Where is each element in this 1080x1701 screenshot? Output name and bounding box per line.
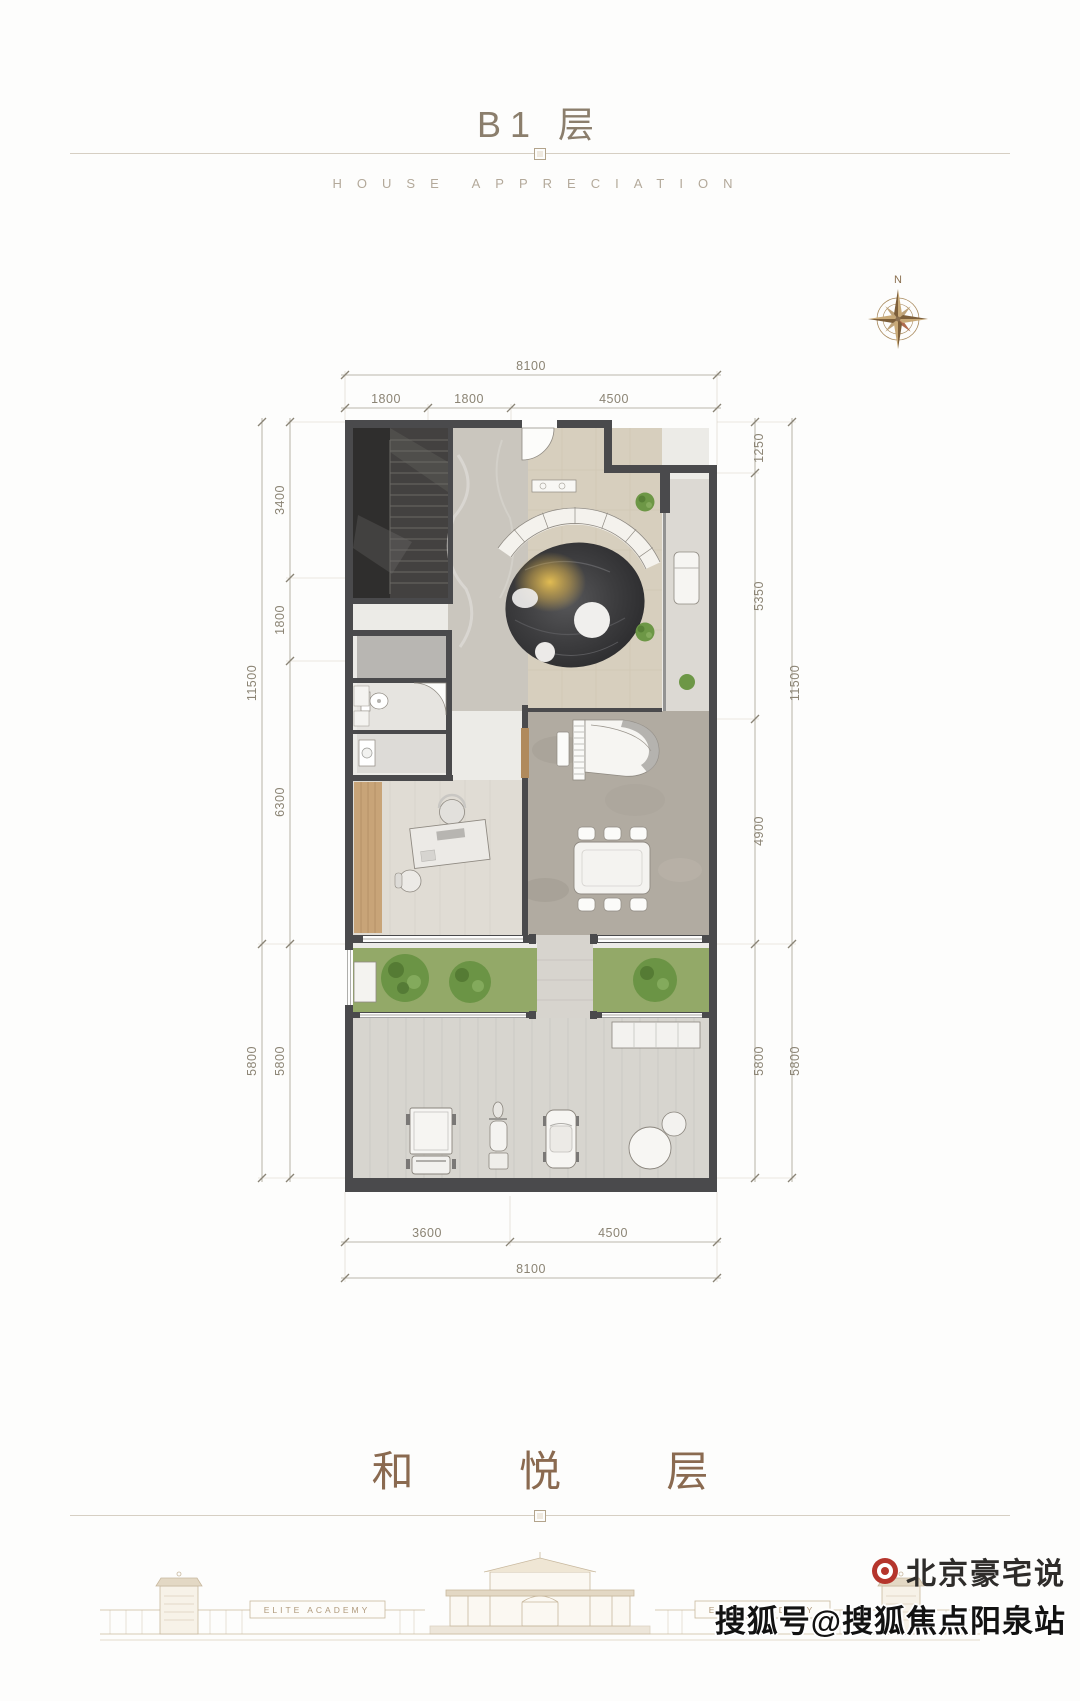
- dining-table: [574, 827, 650, 911]
- bath-sink: [359, 740, 375, 766]
- gate-center-building: [430, 1552, 650, 1634]
- bath-niches: [354, 686, 369, 726]
- courtyard-bush-2: [449, 961, 491, 1003]
- dim-right-inner3: 4900: [752, 816, 766, 846]
- compass-rose: [868, 289, 928, 349]
- vehicle-truck: [406, 1108, 456, 1174]
- bath1-floor: [357, 683, 446, 730]
- divider-ornament-icon: [534, 1510, 546, 1522]
- dim-left-outer2: 5800: [245, 1046, 259, 1076]
- dim-right-inner4: 5800: [752, 1046, 766, 1076]
- dim-right-inner2: 5350: [752, 581, 766, 611]
- living-plant-bottom: [636, 623, 655, 642]
- planter-box: [354, 962, 376, 1002]
- floor-name: 和 悦 层: [0, 1438, 1080, 1499]
- gate-tower-left: [156, 1572, 202, 1634]
- dim-left-inner4: 5800: [273, 1046, 287, 1076]
- footer-divider: [70, 1515, 1010, 1516]
- courtyard-bush-1: [381, 954, 429, 1002]
- staircase: [353, 428, 448, 598]
- compass-icon: N: [858, 270, 938, 354]
- dim-top-seg1: 1800: [371, 392, 401, 406]
- vehicle-car: [543, 1110, 579, 1168]
- dim-top-total: 8100: [516, 359, 546, 373]
- floor-plan: 8100 1800 1800 4500 11500 5800 3400 1800…: [240, 330, 820, 1300]
- gate-banner-left-label: ELITE ACADEMY: [264, 1605, 371, 1615]
- watermark-brand: 北京豪宅说: [871, 1549, 1066, 1593]
- dim-bottom-total: 8100: [516, 1262, 546, 1276]
- dim-left-inner3: 6300: [273, 787, 287, 817]
- page-title: B1 层: [0, 96, 1080, 148]
- dim-left-inner2: 1800: [273, 605, 287, 635]
- dim-bottom-seg2: 4500: [598, 1226, 628, 1240]
- divider-ornament-icon: [534, 148, 546, 160]
- study-door: [521, 728, 529, 778]
- courtyard-walkway: [537, 943, 593, 1018]
- compass-north-label: N: [894, 274, 902, 286]
- page: B1 层 HOUSE APPRECIATION N: [0, 0, 1080, 1701]
- dim-top-seg3: 4500: [599, 392, 629, 406]
- dim-left-outer1: 11500: [245, 665, 259, 701]
- corridor-floor: [448, 428, 528, 711]
- dim-right-inner1: 1250: [752, 433, 766, 463]
- dim-right-outer2: 5800: [788, 1046, 802, 1076]
- garage-cabinet: [612, 1022, 700, 1048]
- living-plant-top: [636, 493, 655, 512]
- brand-logo-icon: [871, 1557, 899, 1585]
- page-subtitle: HOUSE APPRECIATION: [0, 176, 1080, 191]
- header-divider: [70, 153, 1010, 154]
- courtyard-bush-3: [633, 958, 677, 1002]
- dim-right-outer1: 11500: [788, 665, 802, 701]
- dim-bottom-seg1: 3600: [412, 1226, 442, 1240]
- watermark-account: 搜狐号@搜狐焦点阳泉站: [715, 1596, 1066, 1641]
- storage-floor: [357, 636, 446, 678]
- dim-left-inner1: 3400: [273, 485, 287, 515]
- plan-floors: [353, 428, 709, 1178]
- watermark-brand-text: 北京豪宅说: [906, 1549, 1066, 1593]
- dim-top-seg2: 1800: [454, 392, 484, 406]
- entry-console: [532, 480, 576, 492]
